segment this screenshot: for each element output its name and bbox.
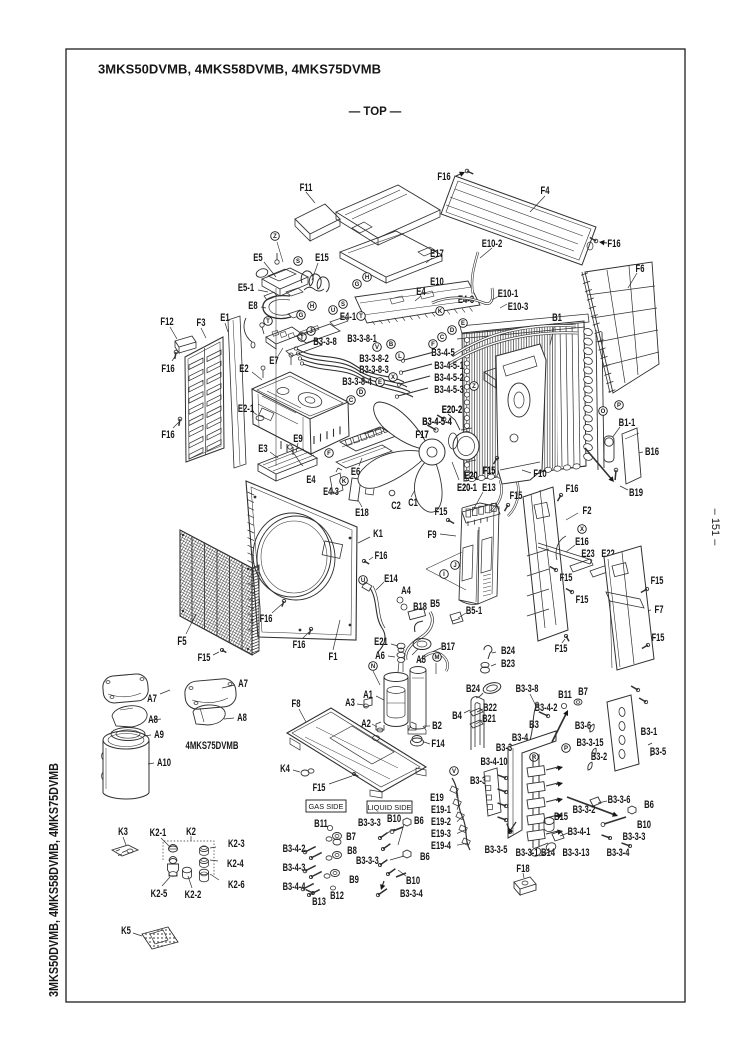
svg-text:B3: B3 [529, 719, 539, 732]
svg-text:E10: E10 [430, 276, 444, 289]
svg-text:B3-4-5-2: B3-4-5-2 [434, 370, 463, 383]
svg-text:B15: B15 [554, 811, 569, 824]
svg-text:E8: E8 [248, 300, 258, 313]
svg-text:B23: B23 [501, 658, 516, 671]
svg-text:B3-3-1: B3-3-1 [516, 845, 539, 858]
svg-text:GAS SIDE: GAS SIDE [309, 802, 344, 811]
svg-text:B3-3-15: B3-3-15 [577, 735, 604, 748]
svg-text:E9: E9 [293, 433, 303, 446]
svg-text:D: D [359, 390, 364, 396]
svg-text:A5: A5 [416, 654, 426, 667]
svg-text:C: C [440, 335, 445, 341]
svg-text:4MKS75DVMB: 4MKS75DVMB [186, 740, 239, 753]
svg-text:K: K [342, 479, 347, 485]
svg-text:K5: K5 [121, 925, 131, 938]
svg-text:B6: B6 [420, 851, 430, 864]
svg-text:F11: F11 [300, 182, 313, 195]
svg-text:K2-3: K2-3 [228, 838, 245, 851]
svg-text:F16: F16 [260, 611, 273, 624]
svg-text:B6: B6 [644, 799, 654, 812]
svg-text:B3-3-6: B3-3-6 [608, 792, 631, 805]
svg-text:F2: F2 [583, 505, 592, 518]
svg-text:B3-4-1: B3-4-1 [568, 824, 591, 837]
svg-text:K2-4: K2-4 [227, 858, 244, 871]
svg-text:F16: F16 [566, 481, 579, 494]
svg-text:E10-2: E10-2 [482, 238, 503, 251]
svg-text:A2: A2 [361, 718, 371, 731]
svg-text:E1: E1 [220, 312, 230, 325]
svg-text:B11: B11 [558, 689, 572, 702]
svg-text:D: D [450, 328, 455, 334]
svg-text:K2-2: K2-2 [185, 889, 202, 902]
svg-text:E4: E4 [416, 286, 426, 299]
svg-text:B11: B11 [314, 818, 328, 831]
svg-text:N: N [371, 664, 375, 670]
svg-text:E5-1: E5-1 [238, 282, 255, 295]
svg-text:F5: F5 [177, 636, 187, 649]
svg-text:F7: F7 [655, 604, 664, 617]
svg-text:F8: F8 [292, 698, 301, 711]
svg-text:S: S [341, 302, 345, 308]
svg-text:B3-3-2: B3-3-2 [573, 802, 596, 815]
svg-text:F15: F15 [651, 573, 664, 586]
svg-text:U: U [331, 308, 335, 314]
svg-text:K4: K4 [280, 763, 290, 776]
svg-text:F16: F16 [161, 363, 175, 376]
svg-text:B3-3-5: B3-3-5 [485, 842, 508, 855]
svg-text:F10: F10 [533, 468, 546, 481]
svg-text:B3-5: B3-5 [650, 744, 666, 757]
svg-text:X: X [391, 375, 395, 381]
svg-text:V: V [452, 769, 456, 775]
svg-text:E20-1: E20-1 [457, 480, 477, 493]
svg-text:A7: A7 [147, 693, 157, 706]
svg-text:E14: E14 [384, 573, 398, 586]
svg-text:B: B [389, 342, 394, 348]
svg-text:F9: F9 [428, 529, 437, 542]
svg-text:K2-6: K2-6 [228, 879, 245, 892]
svg-text:F16: F16 [293, 637, 306, 650]
svg-text:G: G [299, 313, 304, 319]
svg-text:B19: B19 [629, 487, 644, 500]
svg-text:E23: E23 [581, 546, 594, 559]
svg-text:Z: Z [273, 234, 277, 240]
svg-text:E19-3: E19-3 [431, 826, 451, 839]
svg-text:B24: B24 [501, 645, 516, 658]
svg-text:E10-1: E10-1 [498, 288, 519, 301]
svg-text:Z: Z [472, 384, 476, 390]
svg-text:F15: F15 [435, 504, 448, 517]
svg-text:F15: F15 [313, 780, 326, 793]
svg-text:B6: B6 [414, 815, 424, 828]
svg-text:C: C [349, 398, 354, 404]
svg-text:B3-3-8-1: B3-3-8-1 [347, 331, 376, 344]
svg-text:L: L [398, 354, 402, 360]
svg-text:LIQUID SIDE: LIQUID SIDE [368, 803, 412, 812]
svg-text:B3-1: B3-1 [641, 726, 658, 739]
svg-text:B5-1: B5-1 [466, 603, 482, 616]
svg-text:H: H [365, 275, 369, 281]
svg-text:B9: B9 [349, 874, 359, 887]
svg-text:A3: A3 [345, 697, 355, 710]
svg-text:E15: E15 [315, 252, 329, 265]
svg-text:J: J [453, 563, 456, 569]
svg-text:B3-3-8: B3-3-8 [313, 336, 337, 349]
svg-text:P: P [617, 403, 621, 409]
svg-text:B3-4-10: B3-4-10 [481, 754, 508, 767]
svg-text:T: T [266, 319, 270, 325]
svg-text:B16: B16 [645, 446, 660, 459]
svg-text:M: M [435, 655, 440, 661]
svg-text:K: K [438, 309, 443, 315]
svg-text:E5: E5 [253, 252, 263, 265]
svg-text:E10-3: E10-3 [508, 301, 529, 314]
svg-text:F6: F6 [636, 263, 645, 276]
svg-text:H: H [310, 304, 314, 310]
svg-text:B17: B17 [441, 641, 455, 654]
svg-text:B5: B5 [430, 598, 440, 611]
svg-text:T: T [359, 314, 363, 320]
svg-text:K3: K3 [118, 826, 128, 839]
svg-text:A9: A9 [154, 729, 164, 742]
svg-text:3MKS50DVMB, 4MKS58DVMB, 4MKS75: 3MKS50DVMB, 4MKS58DVMB, 4MKS75DVMB [47, 763, 61, 997]
svg-text:F: F [327, 451, 331, 457]
svg-text:B3-3-4: B3-3-4 [607, 845, 630, 858]
svg-text:K2-5: K2-5 [151, 888, 168, 901]
svg-text:B10: B10 [387, 813, 401, 826]
svg-text:B7: B7 [578, 686, 588, 699]
svg-text:B3-4-2: B3-4-2 [283, 841, 306, 854]
svg-text:F14: F14 [431, 738, 445, 751]
svg-text:C2: C2 [391, 498, 401, 511]
svg-text:B3-6: B3-6 [575, 718, 591, 731]
svg-text:B3-3-3: B3-3-3 [358, 815, 381, 828]
svg-text:F12: F12 [160, 316, 173, 329]
svg-text:E3: E3 [258, 443, 268, 456]
svg-text:E13: E13 [482, 482, 496, 495]
svg-text:E: E [461, 321, 465, 327]
svg-text:B3-4-3: B3-4-3 [283, 860, 306, 873]
svg-text:G: G [355, 282, 360, 288]
svg-text:B3-3-3: B3-3-3 [623, 829, 646, 842]
svg-text:K2-1: K2-1 [150, 827, 167, 840]
svg-text:B7: B7 [346, 831, 356, 844]
svg-text:E21: E21 [374, 636, 388, 649]
svg-text:A10: A10 [157, 757, 171, 770]
svg-text:F15: F15 [555, 641, 568, 654]
svg-text:E17: E17 [430, 248, 444, 261]
svg-text:– 151 –: – 151 – [709, 509, 721, 547]
svg-text:E2: E2 [239, 363, 248, 376]
svg-text:B3-3-3: B3-3-3 [356, 853, 379, 866]
svg-text:F16: F16 [161, 429, 175, 442]
svg-text:B14: B14 [541, 847, 556, 860]
svg-text:B3-4-5-3: B3-4-5-3 [434, 382, 463, 395]
svg-text:B3-3-4: B3-3-4 [400, 886, 423, 899]
svg-text:F3: F3 [197, 317, 206, 330]
svg-text:F17: F17 [415, 429, 428, 442]
svg-text:F15: F15 [652, 630, 665, 643]
svg-text:E18: E18 [355, 507, 369, 520]
svg-text:S: S [296, 259, 300, 265]
svg-text:E: E [378, 380, 382, 386]
svg-text:B2: B2 [432, 720, 442, 733]
svg-text:E19-4: E19-4 [431, 838, 452, 851]
svg-text:B3-4-5-4: B3-4-5-4 [422, 414, 452, 427]
svg-text:F16: F16 [375, 548, 388, 561]
svg-text:E7: E7 [269, 355, 278, 368]
svg-text:A4: A4 [401, 585, 411, 598]
svg-text:B21: B21 [482, 711, 496, 724]
svg-text:F15: F15 [510, 488, 523, 501]
svg-text:P: P [564, 746, 568, 752]
svg-text:E2-1: E2-1 [238, 403, 255, 416]
svg-text:F16: F16 [437, 171, 451, 184]
svg-text:E4-1: E4-1 [340, 311, 357, 324]
svg-text:B3-3-8: B3-3-8 [516, 681, 539, 694]
svg-text:F4: F4 [541, 185, 550, 198]
svg-text:B24: B24 [466, 683, 481, 696]
svg-text:B1-1: B1-1 [619, 417, 636, 430]
svg-text:A7: A7 [238, 678, 248, 691]
svg-text:B4: B4 [452, 710, 462, 723]
svg-text:B3-3-13: B3-3-13 [563, 845, 590, 858]
svg-text:B13: B13 [312, 894, 326, 907]
svg-text:X: X [580, 527, 584, 533]
svg-text:A8: A8 [237, 712, 247, 725]
svg-text:— TOP —: — TOP — [349, 106, 402, 118]
svg-text:F16: F16 [607, 238, 621, 251]
svg-text:K1: K1 [373, 528, 383, 541]
svg-text:V: V [375, 345, 379, 351]
svg-text:F1: F1 [329, 651, 338, 664]
svg-text:3MKS50DVMB, 4MKS58DVMB, 4MKS75: 3MKS50DVMB, 4MKS58DVMB, 4MKS75DVMB [98, 62, 381, 77]
svg-text:F15: F15 [198, 650, 211, 663]
svg-text:B1: B1 [552, 312, 562, 325]
svg-text:E19-2: E19-2 [431, 814, 451, 827]
svg-text:B3-4-5-1: B3-4-5-1 [434, 358, 463, 371]
svg-text:F15: F15 [576, 592, 589, 605]
svg-text:O: O [601, 409, 606, 415]
svg-text:E19-1: E19-1 [431, 802, 451, 815]
svg-text:E4-3: E4-3 [323, 484, 339, 497]
svg-text:F: F [431, 342, 435, 348]
svg-text:F15: F15 [483, 463, 496, 476]
svg-text:A6: A6 [375, 650, 385, 663]
svg-text:E4: E4 [306, 472, 316, 485]
